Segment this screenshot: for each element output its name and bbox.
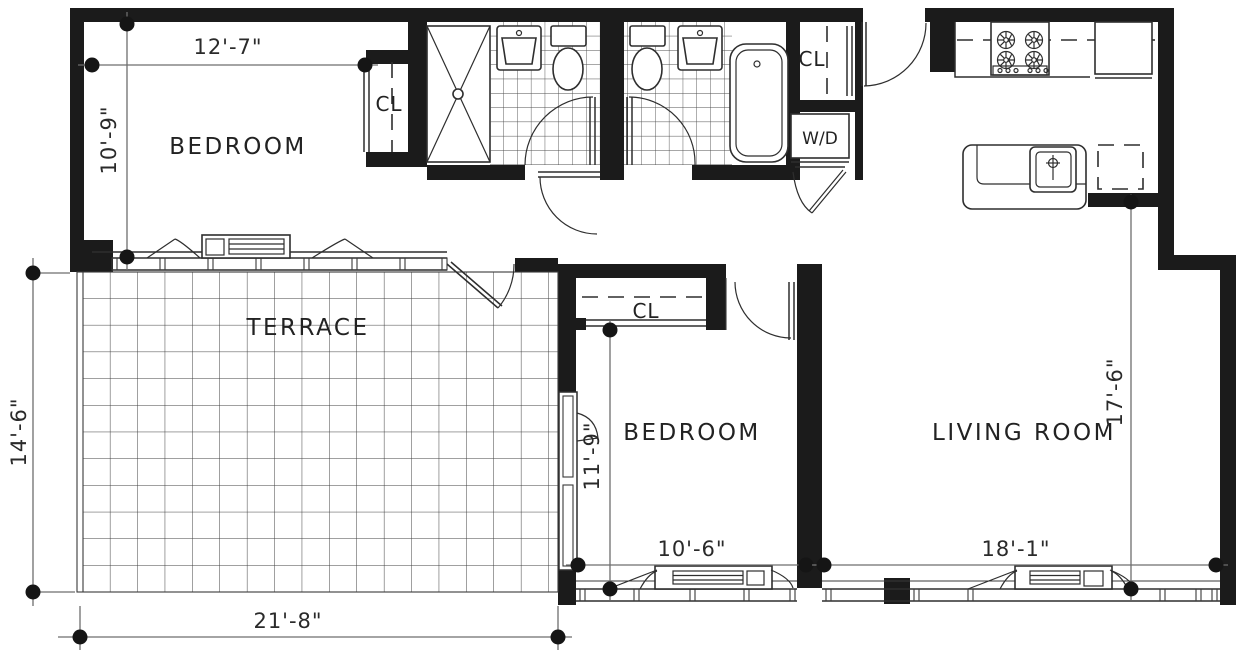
- svg-text:17'-6": 17'-6": [1103, 357, 1127, 426]
- bedroom-1-label: BEDROOM: [169, 134, 307, 160]
- refrigerator-icon: [1095, 22, 1152, 78]
- bathtub-icon: [730, 44, 788, 162]
- floor-plan-canvas: TERRACE BEDROOM CL: [0, 0, 1246, 662]
- dim-terrace-width: 21'-8": [58, 606, 572, 650]
- closet-bedroom-2-label: CL: [632, 299, 659, 323]
- entry-door: [862, 22, 926, 86]
- hvac-convector-icon: [968, 566, 1134, 589]
- svg-text:10'-9": 10'-9": [97, 105, 121, 174]
- laundry-label: W/D: [802, 129, 838, 149]
- dim-bedroom-2-depth: 11'-9": [580, 320, 618, 600]
- svg-text:10'-6": 10'-6": [657, 537, 726, 561]
- range-stove-icon: [991, 22, 1049, 75]
- floor-plan-drawing: TERRACE BEDROOM CL: [0, 0, 1246, 662]
- svg-text:11'-9": 11'-9": [580, 421, 604, 490]
- bedroom-2-label: BEDROOM: [623, 420, 761, 446]
- shower-icon: [427, 26, 490, 162]
- kitchen: [955, 22, 1155, 209]
- bedroom-2-door: [735, 282, 794, 340]
- toilet-icon: [551, 26, 586, 90]
- svg-text:18'-1": 18'-1": [981, 537, 1050, 561]
- living-room-label: LIVING ROOM: [932, 420, 1116, 446]
- bathroom-sink-icon: [678, 26, 722, 70]
- toilet-icon: [630, 26, 665, 90]
- kitchen-island-sink-icon: [1030, 147, 1076, 192]
- terrace: TERRACE: [77, 272, 558, 592]
- hvac-convector-icon: [608, 566, 793, 589]
- laundry-door: [793, 170, 846, 213]
- svg-text:12'-7": 12'-7": [193, 35, 262, 59]
- terrace-label: TERRACE: [245, 315, 369, 341]
- bathroom-sink-icon: [497, 26, 541, 70]
- dim-bedroom-1-width: 12'-7": [78, 35, 378, 73]
- closet-entry: CL: [798, 26, 852, 96]
- bathroom-1: [490, 22, 600, 165]
- closet-entry-label: CL: [798, 47, 825, 71]
- hall-door: [538, 172, 600, 234]
- dim-bedroom-1-depth: 10'-9": [97, 12, 135, 270]
- closet-bedroom-1: CL: [364, 62, 403, 152]
- dishwasher-icon: [1098, 145, 1143, 189]
- living-room: LIVING ROOM: [822, 420, 1220, 601]
- closet-bedroom-1-label: CL: [375, 92, 402, 116]
- hvac-convector-icon: [202, 235, 290, 258]
- svg-text:14'-6": 14'-6": [7, 397, 31, 466]
- dim-terrace-depth: 14'-6": [7, 258, 75, 606]
- bathroom-2: [624, 22, 788, 165]
- svg-text:21'-8": 21'-8": [253, 609, 322, 633]
- dim-living-room-depth: 17'-6": [1103, 194, 1139, 600]
- closet-bedroom-2: CL: [582, 278, 726, 330]
